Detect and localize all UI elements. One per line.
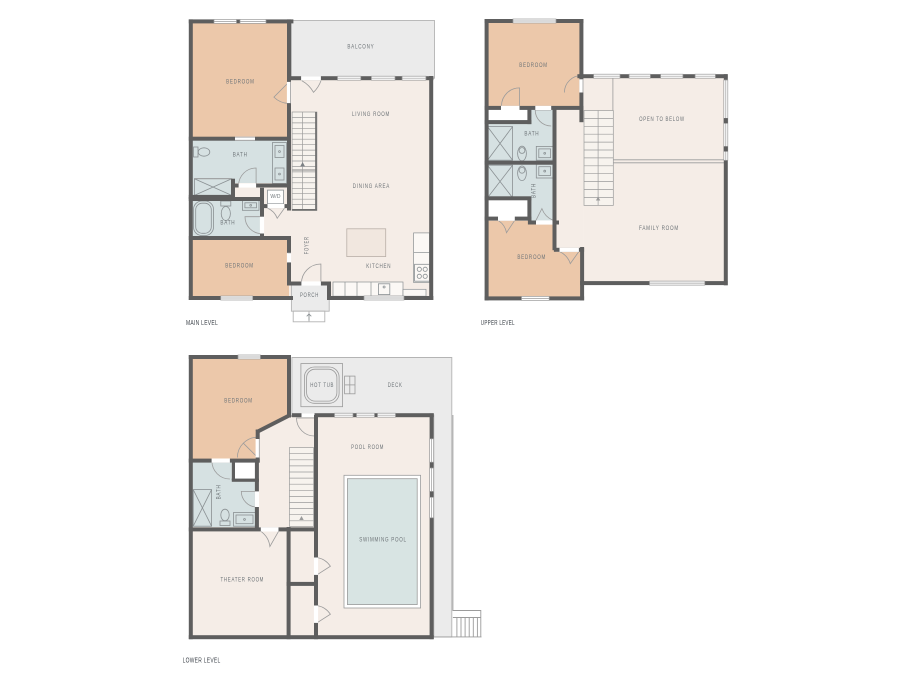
svg-text:BATH: BATH xyxy=(220,219,235,226)
svg-text:BATH: BATH xyxy=(530,183,537,198)
svg-text:LIVING ROOM: LIVING ROOM xyxy=(352,111,390,118)
svg-text:OPEN TO BELOW: OPEN TO BELOW xyxy=(639,116,685,123)
svg-text:BALCONY: BALCONY xyxy=(347,43,374,50)
svg-text:BEDROOM: BEDROOM xyxy=(224,397,253,404)
svg-text:W/D: W/D xyxy=(270,194,281,200)
svg-text:KITCHEN: KITCHEN xyxy=(366,263,391,270)
svg-text:BEDROOM: BEDROOM xyxy=(226,79,255,86)
svg-text:LOWER LEVEL: LOWER LEVEL xyxy=(183,655,221,664)
svg-text:BEDROOM: BEDROOM xyxy=(225,263,254,270)
svg-text:SWIMMING POOL: SWIMMING POOL xyxy=(359,536,407,543)
svg-text:DINING AREA: DINING AREA xyxy=(353,183,390,190)
svg-text:BEDROOM: BEDROOM xyxy=(519,62,548,69)
svg-text:BATH: BATH xyxy=(233,152,248,159)
svg-text:BATH: BATH xyxy=(215,484,222,499)
svg-text:PORCH: PORCH xyxy=(300,292,319,299)
svg-text:UPPER LEVEL: UPPER LEVEL xyxy=(481,318,515,327)
svg-text:HOT TUB: HOT TUB xyxy=(310,382,334,389)
svg-text:MAIN LEVEL: MAIN LEVEL xyxy=(186,318,218,327)
svg-text:THEATER ROOM: THEATER ROOM xyxy=(221,576,265,583)
svg-text:DECK: DECK xyxy=(388,382,403,389)
svg-text:POOL ROOM: POOL ROOM xyxy=(351,444,384,451)
svg-text:FAMILY ROOM: FAMILY ROOM xyxy=(639,225,679,232)
svg-text:FOYER: FOYER xyxy=(304,236,311,254)
svg-text:BATH: BATH xyxy=(524,131,539,138)
svg-text:BEDROOM: BEDROOM xyxy=(517,254,546,261)
